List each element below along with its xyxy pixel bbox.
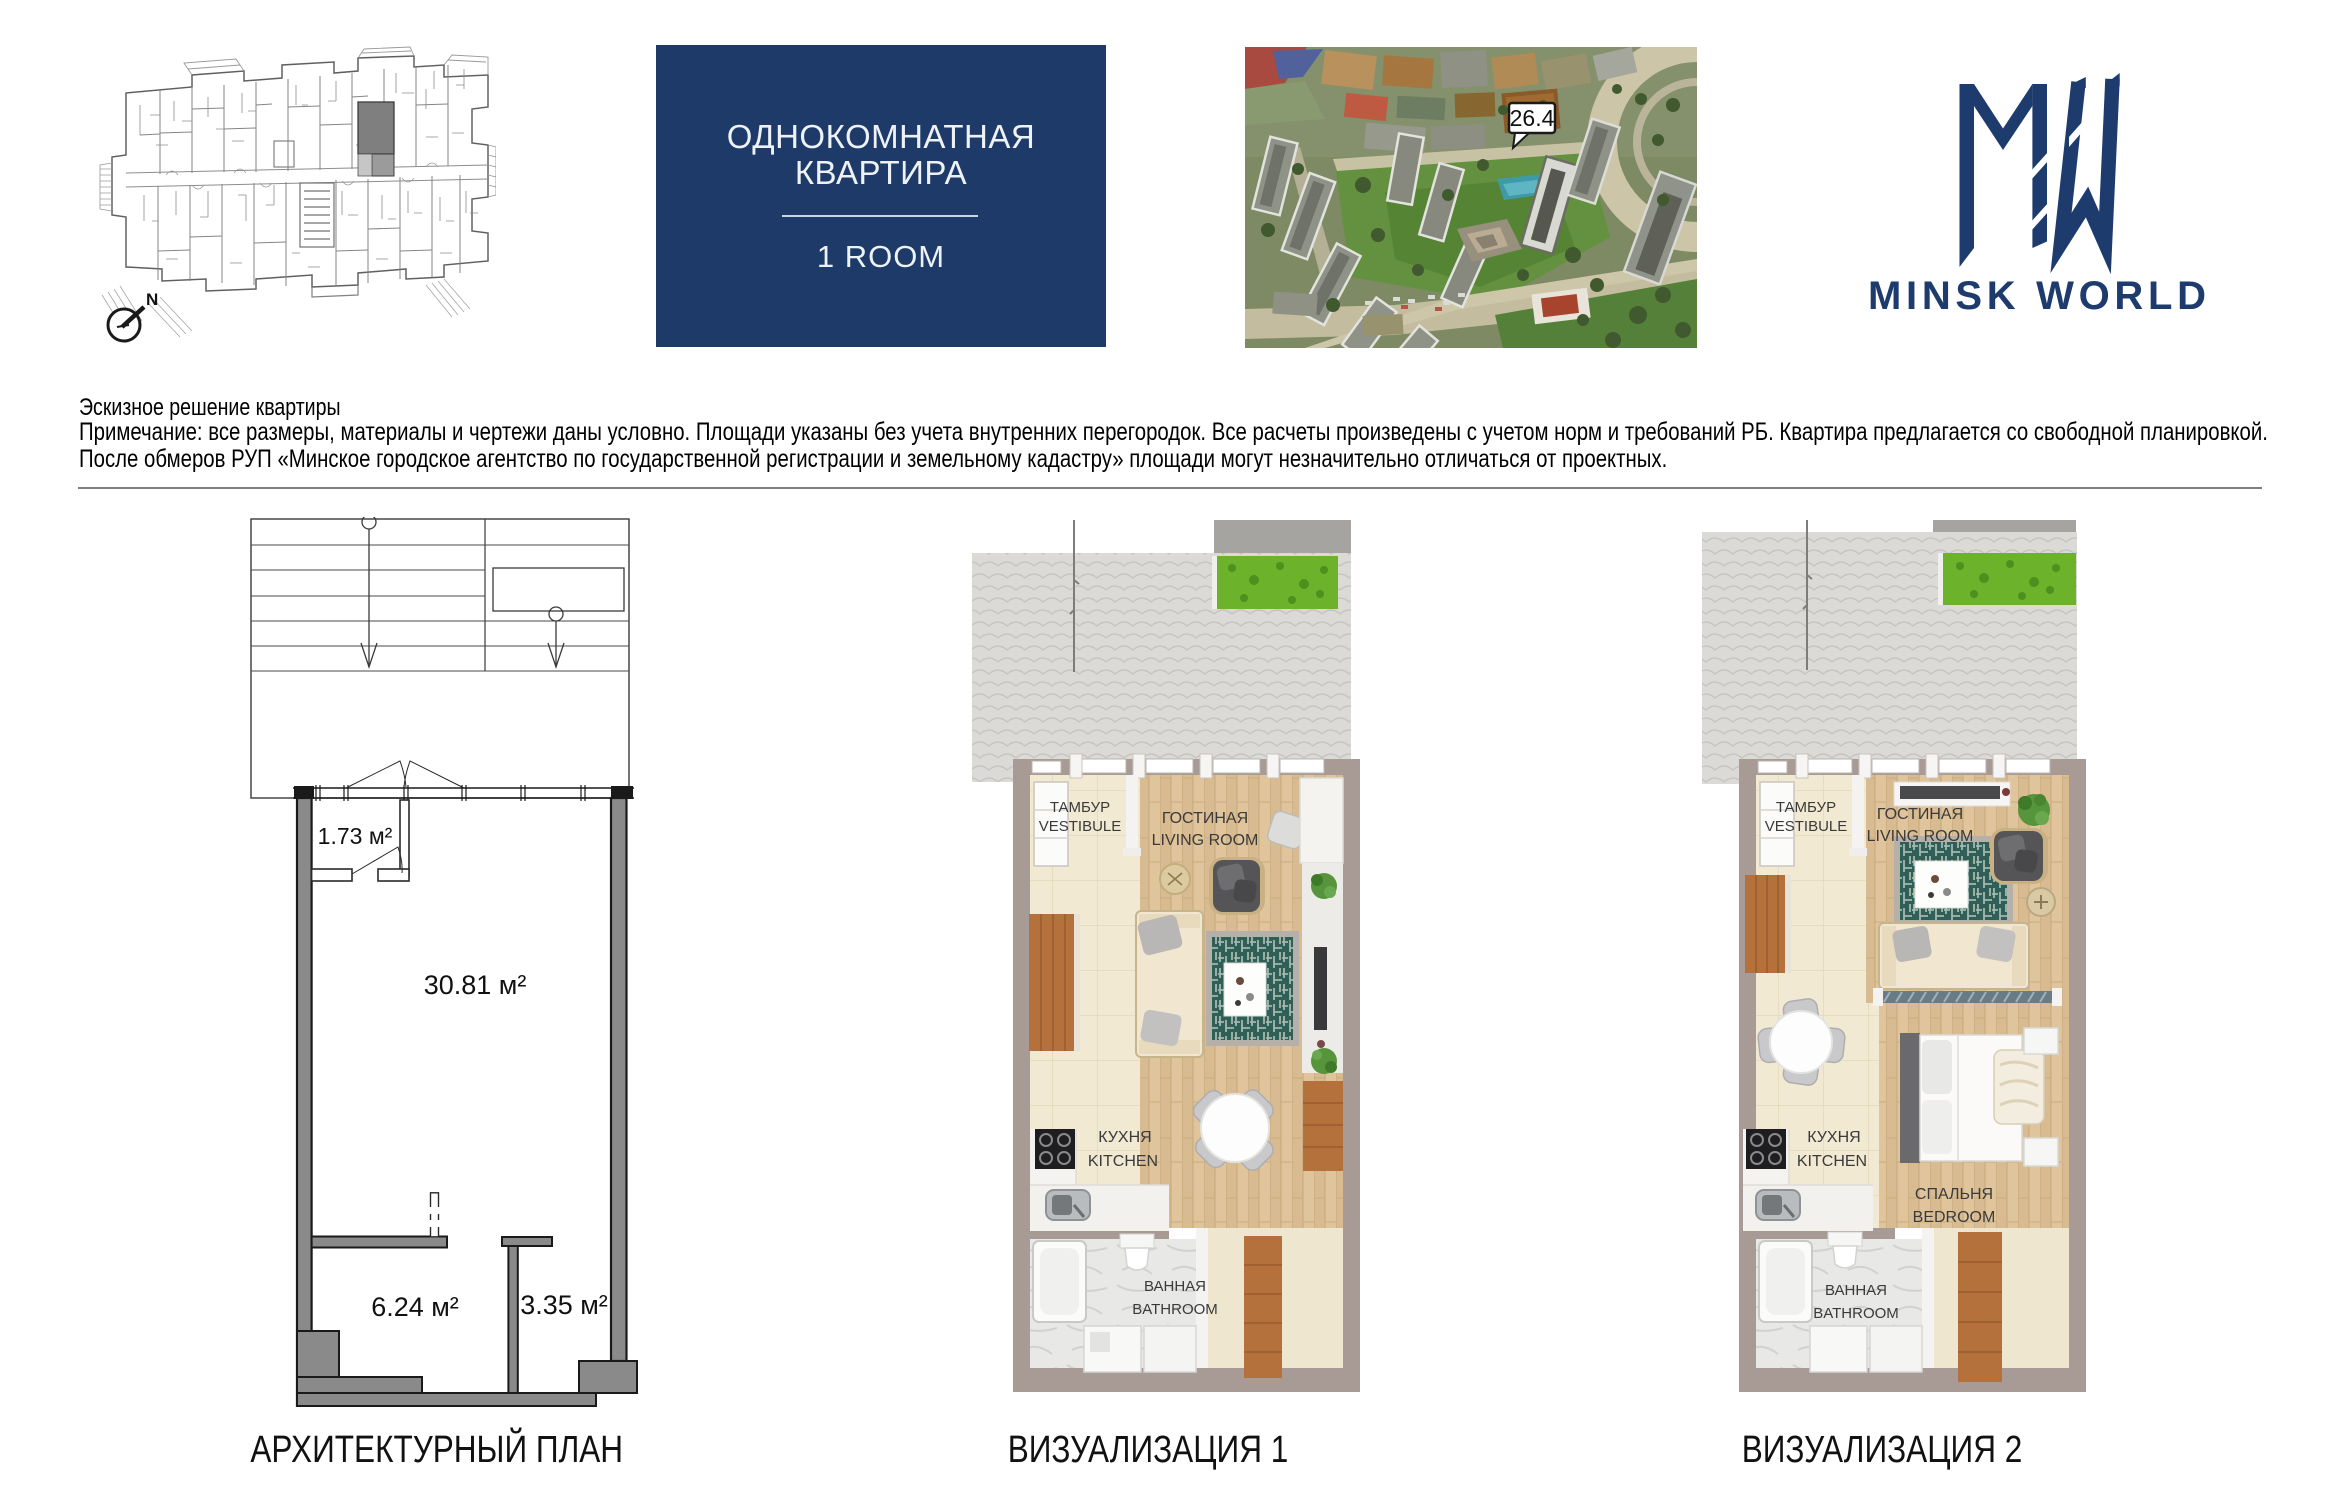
svg-text:ГОСТИНАЯ: ГОСТИНАЯ	[1162, 810, 1248, 827]
svg-text:6.24 м²: 6.24 м²	[371, 1292, 459, 1322]
svg-text:30.81 м²: 30.81 м²	[424, 970, 527, 1000]
svg-text:1.73 м²: 1.73 м²	[318, 823, 393, 849]
svg-text:MINSK WORLD: MINSK WORLD	[1868, 274, 2210, 318]
svg-text:BATHROOM: BATHROOM	[1132, 1301, 1218, 1318]
svg-text:LIVING ROOM: LIVING ROOM	[1152, 832, 1259, 849]
svg-text:BATHROOM: BATHROOM	[1813, 1305, 1899, 1322]
svg-text:ТАМБУР: ТАМБУР	[1776, 799, 1836, 816]
svg-text:ВАННАЯ: ВАННАЯ	[1144, 1278, 1206, 1295]
svg-text:КУХНЯ: КУХНЯ	[1098, 1129, 1151, 1146]
svg-text:3.35 м²: 3.35 м²	[520, 1290, 608, 1320]
svg-text:LIVING ROOM: LIVING ROOM	[1867, 828, 1974, 845]
svg-text:СПАЛЬНЯ: СПАЛЬНЯ	[1915, 1186, 1993, 1203]
svg-text:VESTIBULE: VESTIBULE	[1765, 818, 1848, 835]
svg-text:КУХНЯ: КУХНЯ	[1807, 1129, 1860, 1146]
svg-text:ГОСТИНАЯ: ГОСТИНАЯ	[1877, 806, 1963, 823]
svg-text:KITCHEN: KITCHEN	[1797, 1153, 1867, 1170]
svg-text:ВАННАЯ: ВАННАЯ	[1825, 1282, 1887, 1299]
svg-text:ТАМБУР: ТАМБУР	[1050, 799, 1110, 816]
svg-text:26.4: 26.4	[1510, 105, 1555, 131]
svg-text:BEDROOM: BEDROOM	[1913, 1209, 1996, 1226]
svg-text:KITCHEN: KITCHEN	[1088, 1153, 1158, 1170]
svg-text:N: N	[146, 290, 158, 309]
svg-text:VESTIBULE: VESTIBULE	[1039, 818, 1122, 835]
